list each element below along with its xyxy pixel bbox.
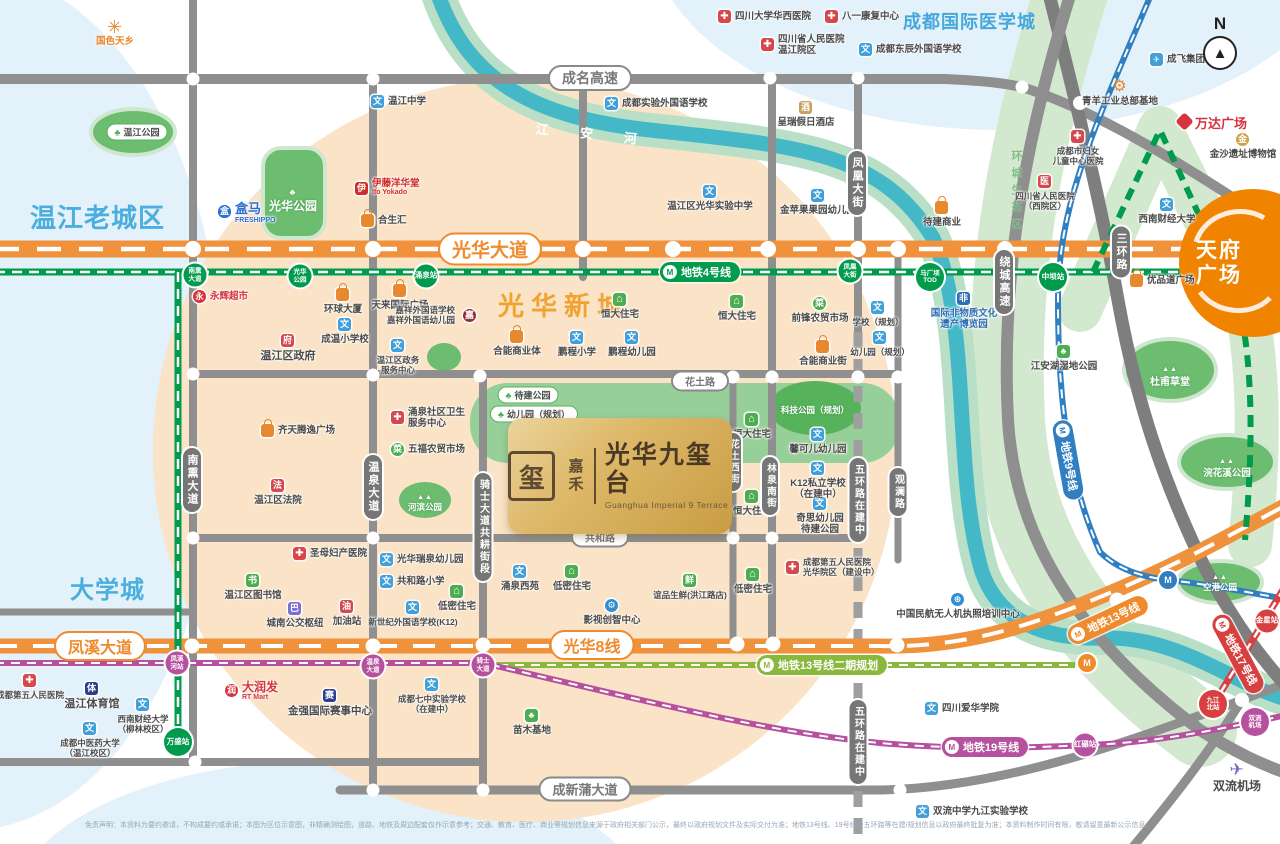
poi-label: 温江体育馆 — [17, 698, 167, 711]
poi-label: 万达广场 — [1195, 116, 1247, 132]
gear-icon: ⚙ — [1113, 80, 1126, 93]
hosp-icon: ✚ — [761, 38, 774, 51]
road-label: 成新蒲大道 — [538, 777, 631, 802]
poi-label: 馨可儿幼儿园 — [743, 444, 893, 455]
school-icon: 文 — [859, 43, 872, 56]
park-label: ▲▲空港公园 — [1203, 574, 1237, 593]
metro-logo-icon: M — [1159, 571, 1177, 589]
metro-station: 光华公园 — [289, 265, 312, 288]
bag-icon — [510, 330, 523, 343]
poi-label: 鹏程幼儿园 — [557, 347, 707, 358]
park-label: ▲▲河滨公园 — [408, 494, 442, 513]
poi-label: 成温小学校 — [270, 334, 420, 345]
hosp-icon: ✚ — [786, 561, 799, 574]
bag-icon — [1130, 274, 1143, 287]
res-icon: ⌂ — [745, 413, 758, 426]
road-label-vertical: 观澜路 — [890, 468, 907, 516]
park-label: ▲▲杜甫草堂 — [1150, 366, 1190, 388]
poi-label: 西南财经大学（柳林校区） — [68, 714, 218, 734]
compass: N ▲ — [1200, 14, 1240, 70]
logo-divider — [594, 448, 595, 504]
poi-label: 成都市妇女儿童中心医院 — [1003, 146, 1153, 166]
metro-line-label: M地铁19号线 — [942, 737, 1028, 757]
park-ic-icon: ♣ — [525, 709, 538, 722]
poi-label: 呈瑞假日酒店 — [731, 117, 881, 128]
metro-logo-icon: M — [1078, 654, 1096, 672]
region-label: 大学城 — [70, 570, 145, 605]
globe-icon: ⊕ — [951, 593, 964, 606]
road-label-vertical: 凤凰大街 — [848, 151, 866, 215]
poi-label: 共和路小学 — [397, 576, 445, 587]
road-label: 凤溪大道 — [54, 631, 146, 661]
poi-label: 幼儿园（规划） — [805, 347, 955, 357]
metro-line-label: M地铁13号线二期规划 — [757, 655, 887, 675]
poi-label: 温江区法院 — [203, 495, 353, 506]
park-label: ♣温江公园 — [107, 124, 168, 141]
hosp-icon: ✚ — [825, 10, 838, 23]
hosp-icon: ✚ — [23, 674, 36, 687]
poi-label: 涌泉社区卫生服务中心 — [408, 407, 465, 430]
metro-station: 凤溪河站 — [166, 652, 189, 675]
hotel-icon: 酒 — [799, 101, 812, 114]
market-icon: 菜 — [391, 443, 404, 456]
hosp-icon: ✚ — [293, 547, 306, 560]
school-icon: 文 — [371, 95, 384, 108]
road-label: 光华大道 — [438, 233, 542, 266]
metro-station: 双流机场 — [1241, 708, 1269, 736]
poi-label: 江安湖湿地公园 — [989, 361, 1139, 372]
bag-icon — [261, 424, 274, 437]
heritage-icon: 非 — [957, 292, 970, 305]
govred-icon: 医 — [1038, 175, 1051, 188]
project-brand: 嘉禾 — [564, 458, 585, 494]
hema-icon: 盒 — [218, 205, 231, 218]
river-name-char: 河 — [623, 127, 638, 147]
compass-icon: ▲ — [1203, 36, 1237, 70]
school-icon: 文 — [380, 575, 393, 588]
metro-station: 骑士大道 — [472, 654, 495, 677]
poi-label: 温江区图书馆 — [178, 590, 328, 601]
poi-label: 盒马FRESHIPPO — [235, 201, 275, 225]
res-icon: ⌂ — [730, 295, 743, 308]
metro-station: 金星站 — [1256, 610, 1279, 633]
park-icon: ♣ — [506, 390, 512, 400]
poi-label: 成都实验外国语学校 — [622, 98, 708, 109]
park-label: ▲▲浣花溪公园 — [1203, 458, 1251, 479]
hosp-icon: ✚ — [718, 10, 731, 23]
poi-label: 待建商业 — [867, 217, 1017, 228]
poi-label: 温江区政务服务中心 — [323, 355, 473, 375]
poi-label: 苗木基地 — [457, 725, 607, 736]
poi-label: 光华瑞泉幼儿园 — [397, 554, 464, 565]
compass-n: N — [1200, 14, 1240, 34]
res-icon: ⌂ — [746, 568, 759, 581]
metro-logo-icon: M — [1069, 625, 1088, 644]
poi-label: 金苹果果园幼儿园 — [743, 205, 893, 216]
medal-icon: 金 — [1236, 133, 1249, 146]
metro-station: 温泉大道 — [362, 655, 385, 678]
poi-label: 低密住宅 — [678, 584, 828, 595]
poi-label: 四川爱华学院 — [942, 703, 999, 714]
project-logo-card: 玺 嘉禾 光华九玺台 Guanghua Imperial 9 Terrace — [508, 418, 732, 534]
yh-icon: 永 — [193, 290, 206, 303]
project-name-en: Guanghua Imperial 9 Terrace — [605, 500, 732, 510]
metro-logo-icon: M — [760, 658, 774, 672]
park-icon: ♣ — [498, 409, 504, 419]
school-icon: 文 — [925, 702, 938, 715]
poi-label: 圣母妇产医院 — [310, 548, 367, 559]
road-label-vertical: 三环路 — [1112, 227, 1130, 278]
gearblue-icon: ⚙ — [605, 599, 618, 612]
ferris-icon: ✳ — [108, 20, 121, 33]
govred-icon: 法 — [271, 479, 284, 492]
poi-label: 八一康复中心 — [842, 11, 899, 22]
poi-label: 四川大学华西医院 — [735, 11, 811, 22]
poi-label: 温江中学 — [388, 96, 426, 107]
gas-icon: 油 — [340, 600, 353, 613]
plane-icon: ✈ — [1230, 763, 1243, 776]
poi-label: 合能商业街 — [748, 356, 898, 367]
metro-station: 马厂坝TOD — [916, 263, 944, 291]
region-label: 成都国际医学城 — [903, 8, 1036, 34]
bag-icon — [935, 201, 948, 214]
school-icon: 文 — [625, 331, 638, 344]
school-icon: 文 — [916, 805, 929, 818]
poi-label: 成都第五人民医院光华院区（建设中） — [803, 557, 880, 577]
park-icon: ♣ — [115, 127, 121, 137]
park-label: ♣光华公园 — [269, 188, 317, 214]
road-label: 光华8线 — [550, 630, 635, 660]
school-icon: 文 — [811, 462, 824, 475]
market-icon: 菜 — [813, 297, 826, 310]
poi-label: 奇思幼儿园待建公园 — [745, 513, 895, 536]
school-icon: 文 — [425, 678, 438, 691]
metro-station: 涌泉站 — [415, 265, 438, 288]
hosp-icon: ✚ — [1071, 130, 1084, 143]
poi-label: 五福农贸市场 — [408, 444, 465, 455]
poi-label: 双流机场 — [1162, 779, 1280, 793]
road-label-vertical: 骑士大道共耕街段 — [475, 473, 492, 581]
res-icon: ⌂ — [613, 293, 626, 306]
river-name-char: 江 — [535, 118, 551, 139]
rt-icon: 润 — [225, 684, 238, 697]
metro-station: 红碾站 — [1074, 734, 1097, 757]
arena-icon: 赛 — [323, 689, 336, 702]
park-label: ♣待建公园 — [498, 387, 559, 404]
road-label-vertical: 南熏大道 — [183, 448, 201, 512]
tianfu-square-label: 天府 广场 — [1196, 238, 1242, 288]
school-icon: 文 — [1160, 198, 1173, 211]
cfei-icon: ✈ — [1150, 53, 1163, 66]
river-name-char: 安 — [579, 122, 594, 142]
road-label-vertical: 绕城高速 — [995, 250, 1013, 314]
poi-label: 加油站 — [272, 616, 422, 627]
hosp-icon: ✚ — [391, 411, 404, 424]
school-icon: 文 — [811, 189, 824, 202]
school-icon: 文 — [380, 553, 393, 566]
school-icon: 文 — [570, 331, 583, 344]
poi-label: 低密住宅 — [382, 601, 532, 612]
poi-label: 大润发RT Mart — [242, 680, 278, 703]
map-canvas: 温江老城区大学城成都国际医学城光华新城江安河环城生态区成名高速光华大道凤溪大道光… — [0, 0, 1280, 844]
metro-station: 万盛站 — [164, 728, 192, 756]
poi-label: 永辉超市 — [210, 291, 248, 302]
poi-label: 双流中学九江实验学校 — [933, 806, 1028, 817]
metro-station: 凤凰大街 — [839, 260, 862, 283]
region-label: 温江老城区 — [30, 198, 165, 235]
poi-label: 成都东辰外国语学校 — [876, 44, 962, 55]
poi-label: 中国民航无人机执照培训中心 — [883, 609, 1033, 620]
metro-logo-icon: M — [663, 265, 677, 279]
metro-logo-icon: M — [1213, 615, 1232, 634]
poi-label: 青羊工业总部基地 — [1045, 96, 1195, 107]
road-label: 成名高速 — [548, 65, 632, 91]
school-icon: 文 — [873, 331, 886, 344]
project-name: 光华九玺台 — [605, 442, 732, 497]
poi-label: 伊藤洋华堂Ito Yokado — [372, 178, 420, 198]
metro-logo-icon: M — [1055, 422, 1071, 438]
poi-label: 嘉祥外国语学校嘉祥外国语幼儿园 — [310, 305, 455, 325]
poi-label: 成都中医药大学（温江校区） — [15, 738, 165, 758]
poi-label: 西南财经大学 — [1092, 214, 1242, 225]
road-label: 花土路 — [671, 371, 729, 392]
lib-icon: 书 — [246, 574, 259, 587]
poi-label: 四川省人民医院温江院区 — [778, 34, 845, 57]
project-seal-icon: 玺 — [508, 451, 555, 501]
road-label-vertical: 温泉大道 — [364, 455, 382, 519]
metro-station: 中坝站 — [1039, 263, 1067, 291]
metro-station: 南熏大道 — [184, 264, 207, 287]
poi-label: 国色天乡 — [40, 36, 190, 47]
road-label-vertical: 林泉南街 — [762, 457, 778, 515]
bus-icon: 巴 — [288, 602, 301, 615]
bag-icon — [393, 284, 406, 297]
poi-label: 齐天腾逸广场 — [278, 425, 335, 436]
poi-label: 金沙遗址博物馆 — [1168, 149, 1280, 160]
poi-label: 优品道广场 — [1147, 275, 1195, 286]
poi-label: 成都七中实验学校（在建中） — [357, 694, 507, 714]
metro-logo-icon: M — [945, 740, 959, 754]
metro-line-label: M地铁4号线 — [660, 262, 740, 282]
poi-label: 影视创智中心 — [537, 615, 687, 626]
ito-icon: 伊 — [355, 182, 368, 195]
disclaimer-text: 免责声明：本资料为要约邀请，不构成要约或承诺；本图为区位示意图，非精确测绘图，道… — [85, 820, 1225, 830]
park-label: 科技公园（规划） — [781, 404, 849, 416]
school-icon: 文 — [703, 185, 716, 198]
school-icon: 文 — [513, 565, 526, 578]
road-label-vertical: 五环路在建中 — [850, 458, 867, 542]
metro-station: 九江北站 — [1199, 690, 1227, 718]
poi-label: 四川省人民医院（西院区） — [970, 191, 1120, 211]
school-icon: 文 — [605, 97, 618, 110]
poi-label: 学校（规划） — [803, 317, 953, 327]
res-icon: ⌂ — [565, 565, 578, 578]
poi-label: 合生汇 — [378, 215, 407, 226]
park-ic-icon: ♣ — [1057, 345, 1070, 358]
road-label-vertical: 五环路在建中 — [850, 700, 867, 784]
bag-icon — [361, 214, 374, 227]
